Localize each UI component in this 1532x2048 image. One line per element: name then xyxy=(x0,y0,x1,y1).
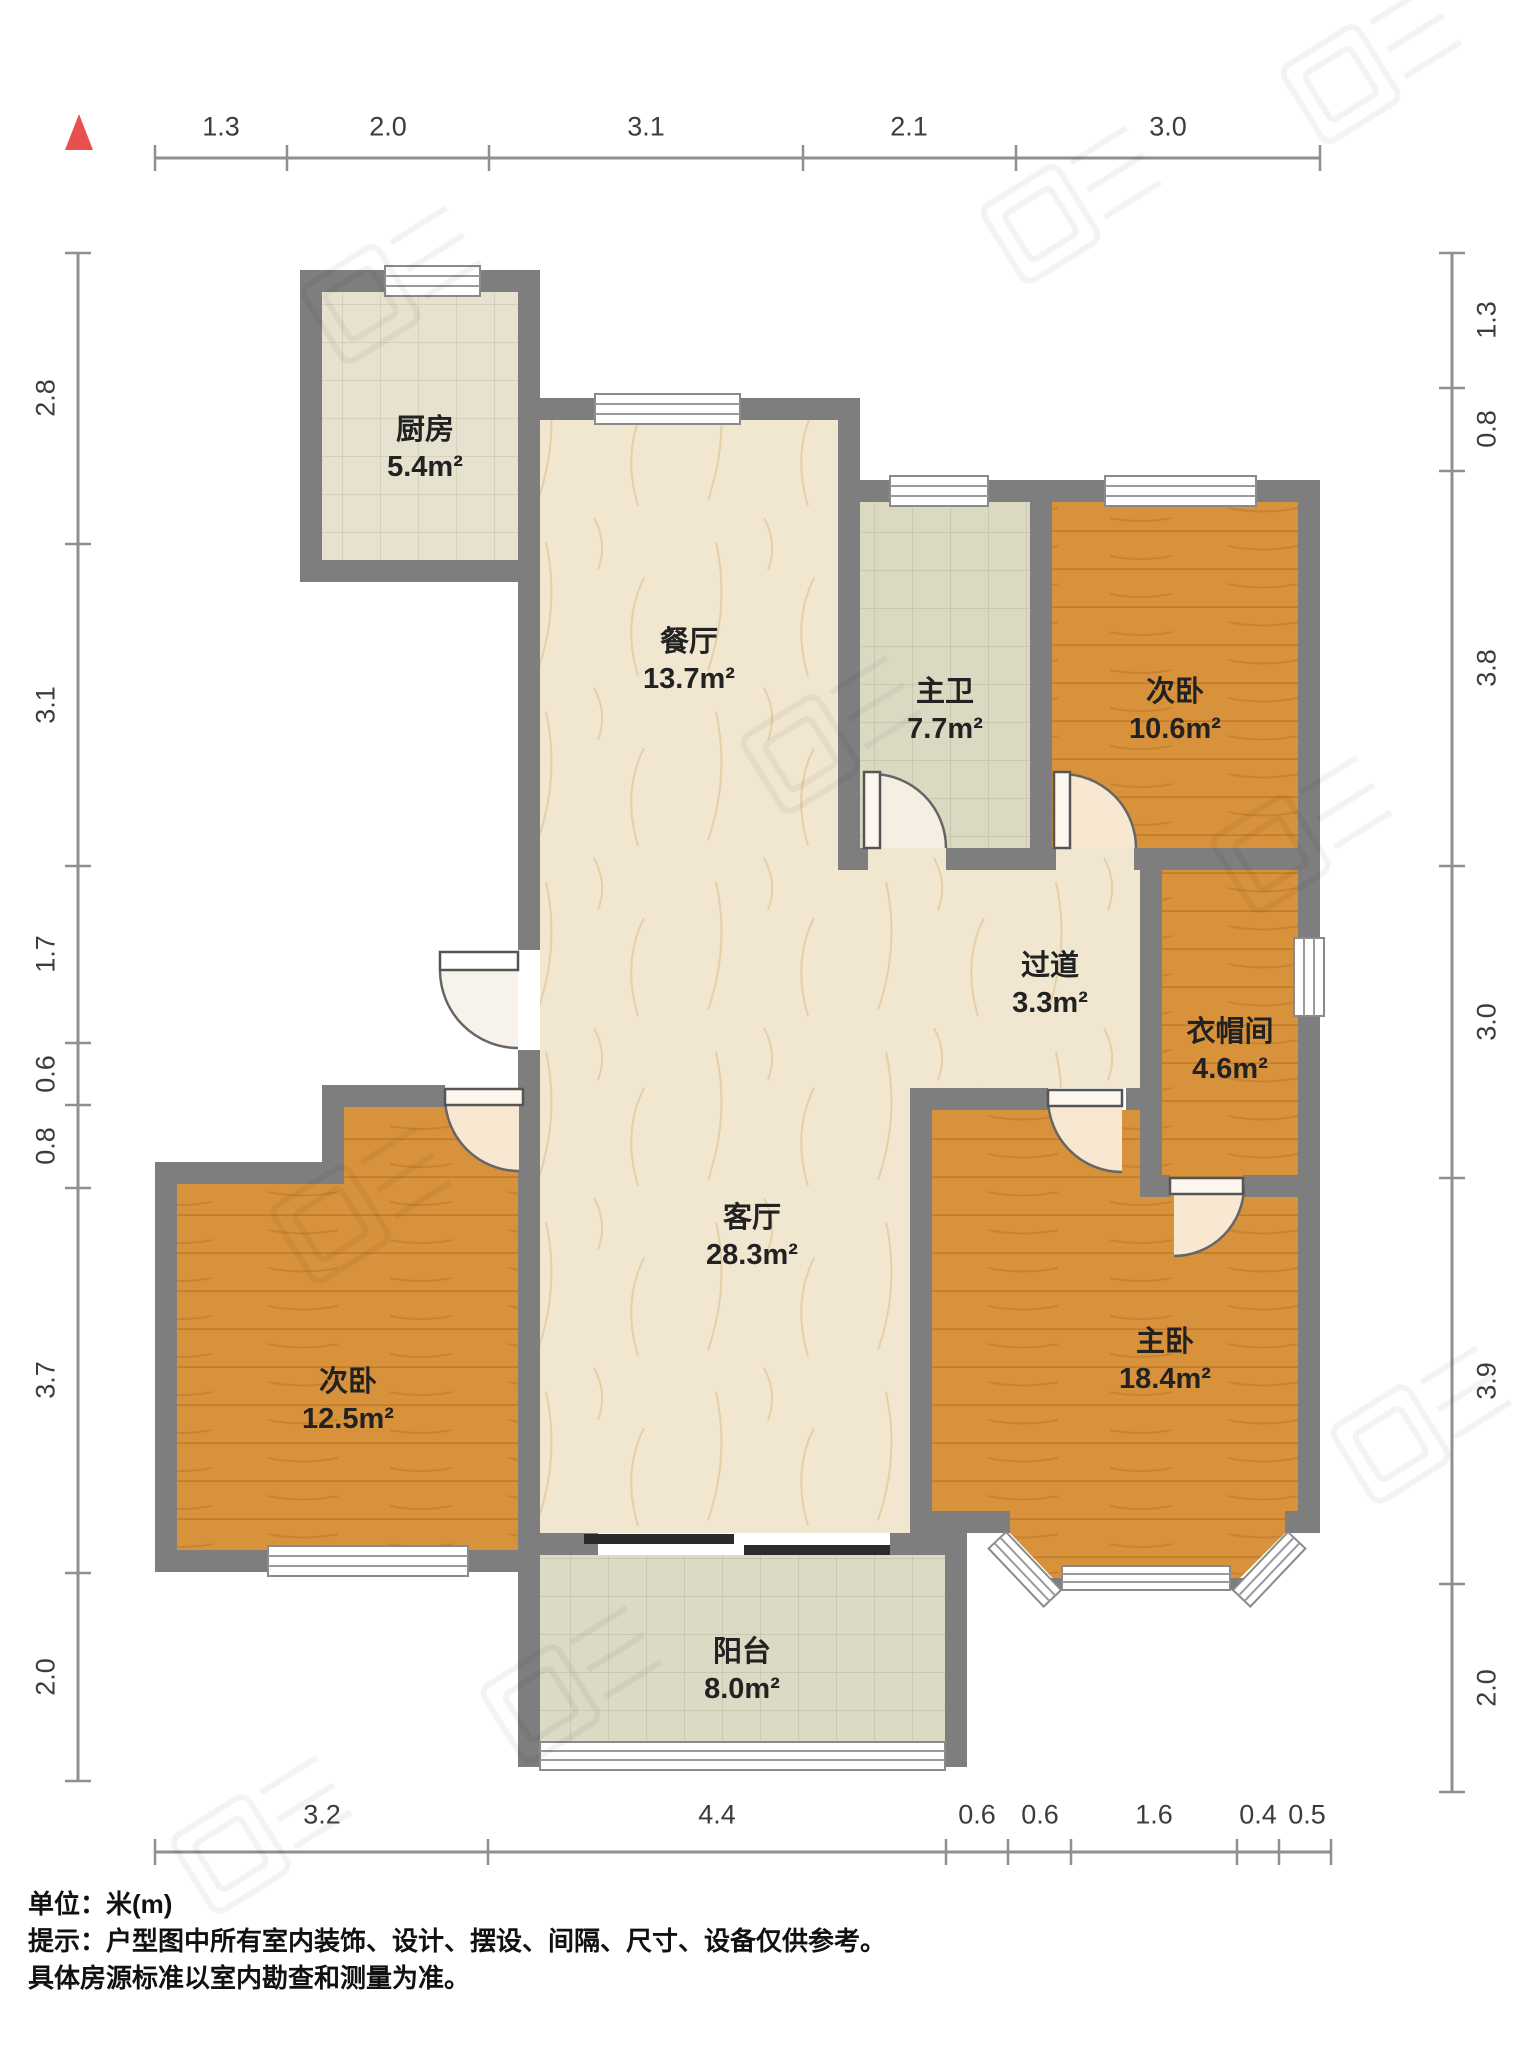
dim-right-4: 3.0 xyxy=(1472,977,1503,1067)
tip-note-2: 具体房源标准以室内勘查和测量为准。 xyxy=(28,1960,886,1997)
footer-notes: 单位：米(m) 提示：户型图中所有室内装饰、设计、摆设、间隔、尺寸、设备仅供参考… xyxy=(28,1886,886,1997)
dim-right-1: 1.3 xyxy=(1472,275,1503,365)
dim-left-7: 2.0 xyxy=(31,1632,62,1722)
dim-top-3: 3.1 xyxy=(601,112,691,143)
dim-right-2: 0.8 xyxy=(1472,384,1503,474)
dim-right-6: 2.0 xyxy=(1472,1643,1503,1733)
dim-left-2: 3.1 xyxy=(31,660,62,750)
dim-left-1: 2.8 xyxy=(31,353,62,443)
dim-bottom-4: 0.6 xyxy=(995,1800,1085,1831)
sliding-door xyxy=(584,1533,890,1555)
dim-right-3: 3.8 xyxy=(1472,623,1503,713)
floorplan-canvas xyxy=(0,0,1532,2048)
unit-note: 单位：米(m) xyxy=(28,1886,886,1923)
floorplan-page: 厨房 5.4m² 餐厅 13.7m² 主卫 7.7m² 次卧 10.6m² 过道… xyxy=(0,0,1532,2048)
dim-top-5: 3.0 xyxy=(1123,112,1213,143)
floors xyxy=(177,292,1298,1745)
dim-left-6: 3.7 xyxy=(31,1335,62,1425)
north-arrow-icon xyxy=(65,114,93,150)
dim-top-2: 2.0 xyxy=(343,112,433,143)
dim-bottom-1: 3.2 xyxy=(277,1800,367,1831)
dim-left-3: 1.7 xyxy=(31,909,62,999)
dim-bottom-7: 0.5 xyxy=(1262,1800,1352,1831)
dim-top-4: 2.1 xyxy=(864,112,954,143)
dim-right-5: 3.9 xyxy=(1472,1336,1503,1426)
tip-note-1: 提示：户型图中所有室内装饰、设计、摆设、间隔、尺寸、设备仅供参考。 xyxy=(28,1923,886,1960)
dim-bottom-2: 4.4 xyxy=(672,1800,762,1831)
dim-top-1: 1.3 xyxy=(176,112,266,143)
dim-left-5: 0.8 xyxy=(31,1101,62,1191)
dim-bottom-5: 1.6 xyxy=(1109,1800,1199,1831)
